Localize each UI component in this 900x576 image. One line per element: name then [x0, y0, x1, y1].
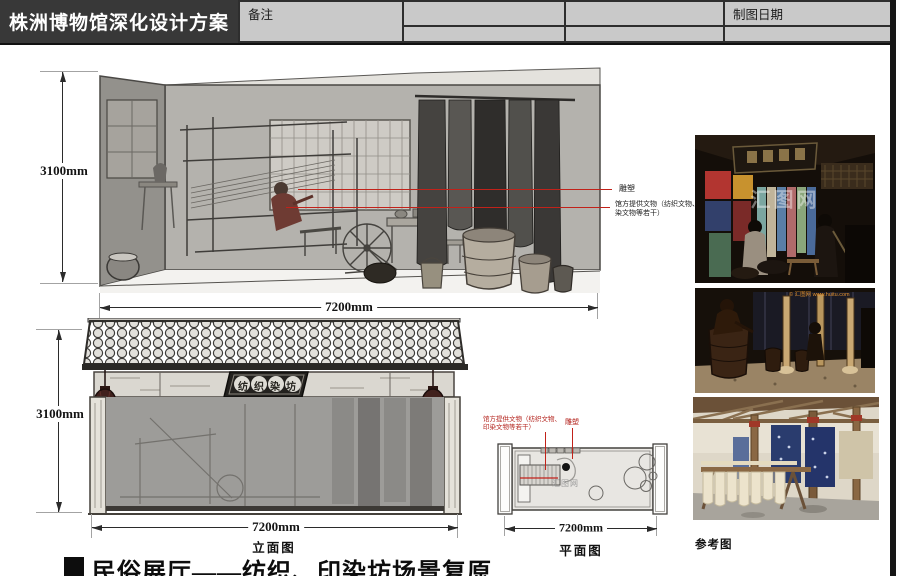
elev2-width-dim: 7200mm	[248, 519, 304, 535]
plan-annotation-artifacts-1: 馆方提供文物（纺织文物、	[483, 416, 561, 424]
ext-line	[40, 71, 98, 72]
post-left	[90, 397, 106, 514]
table-cell-empty-3	[404, 27, 564, 41]
plan-leader-sculpture	[572, 428, 573, 459]
elev1-width-dim: 7200mm	[321, 299, 377, 315]
photo1-watermark: 汇图网	[751, 184, 820, 213]
reference-photo-2	[695, 288, 875, 393]
plan-drawing	[495, 440, 670, 520]
design-sheet: 株洲博物馆深化设计方案 制图日期 备注	[0, 0, 900, 576]
elev1-annotation-sculpture: 雕塑	[619, 184, 635, 194]
plan-door-band	[541, 448, 580, 453]
plan-watermark: 汇图网	[552, 478, 579, 489]
drawing-date-cell: 制图日期	[725, 2, 891, 25]
reference-section-label: 参考图	[695, 536, 733, 552]
table-cell-empty-2	[566, 2, 723, 25]
plan-sculpture-dot	[562, 463, 570, 471]
ext-line	[40, 283, 98, 284]
plan-width-dim: 7200mm	[555, 521, 607, 536]
plan-annotation-sculpture: 雕塑	[565, 418, 579, 427]
plan-label: 平面图	[559, 540, 603, 559]
sheet-title: 株洲博物馆深化设计方案	[9, 8, 229, 35]
table-cell-empty-1	[404, 2, 564, 25]
interior-opening	[106, 397, 444, 511]
photo2-watermark: © 汇图网 www.huitu.com	[789, 290, 850, 298]
title-bar-table: 制图日期 备注	[238, 0, 893, 45]
table-cell-empty-4	[566, 27, 723, 41]
reference-photo-3	[693, 397, 879, 520]
sheet-right-border	[890, 0, 896, 576]
plan-leader-artifacts	[545, 432, 546, 470]
shop-sign-text: 纺织染坊	[238, 378, 302, 393]
roof-tiles	[84, 321, 464, 364]
sheet-title-block: 株洲博物馆深化设计方案	[0, 0, 238, 45]
caption-bullet	[64, 557, 84, 576]
plan-column-left	[498, 444, 512, 514]
elevation1-drawing	[95, 60, 605, 295]
elevation2-drawing	[80, 318, 470, 523]
page-caption: 民俗展厅——纺织、印染坊场景复原	[92, 552, 492, 576]
elev1-annotation-artifacts: 馆方提供文物（纺织文物、印染文物等若干）	[615, 200, 707, 218]
table-cell-empty-5	[725, 27, 891, 41]
elev2-height-dim: 3100mm	[32, 406, 88, 422]
ext-line	[36, 512, 82, 513]
plan-annotation-artifacts-2: 印染文物等若干）	[483, 424, 535, 432]
elev1-height-dim: 3100mm	[36, 163, 92, 179]
post-right	[444, 397, 460, 514]
remarks-cell: 备注	[240, 2, 402, 41]
leader-line-artifacts	[286, 207, 610, 208]
leader-line-sculpture	[298, 189, 612, 190]
